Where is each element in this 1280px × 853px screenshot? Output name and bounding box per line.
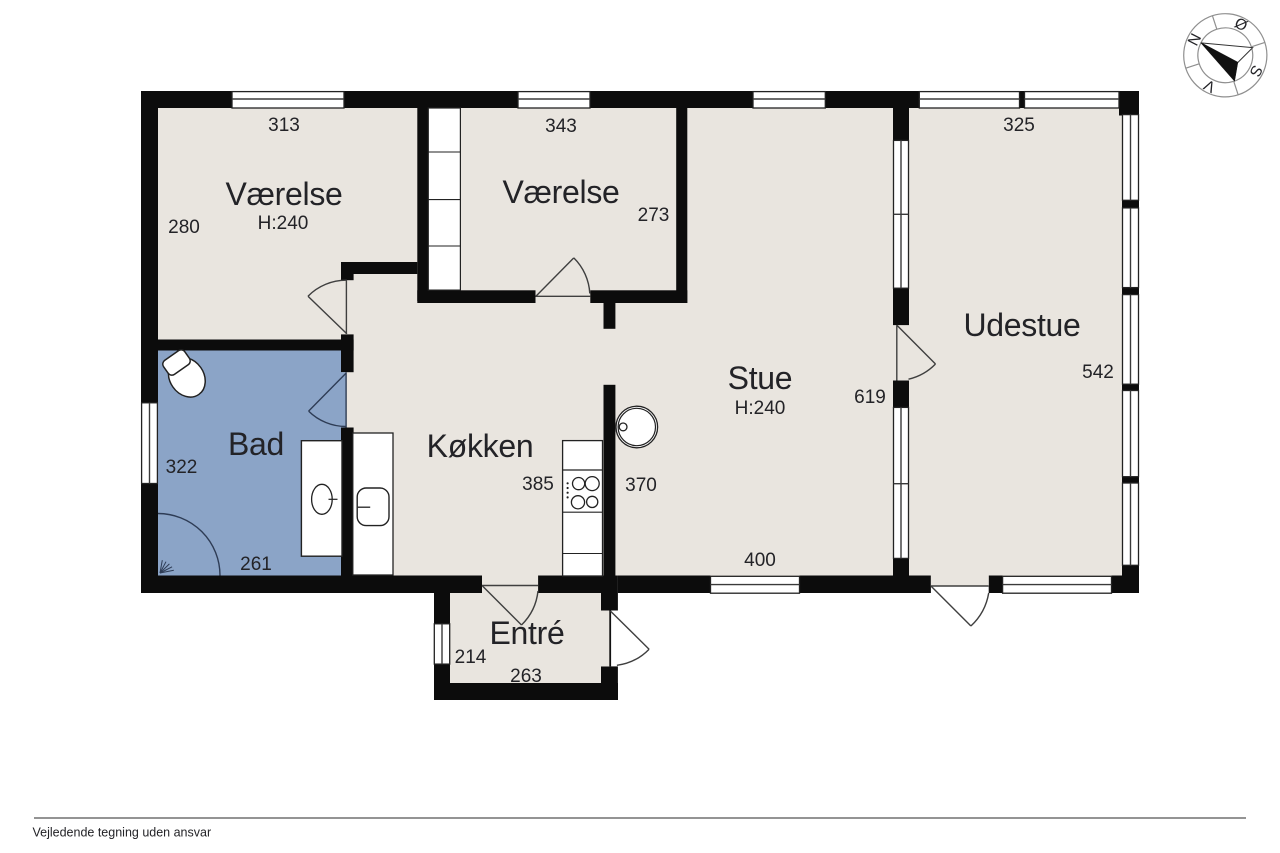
svg-text:H:240: H:240 [258, 213, 309, 234]
svg-text:214: 214 [455, 647, 487, 668]
svg-text:313: 313 [268, 115, 300, 136]
svg-text:Stue: Stue [728, 360, 793, 396]
svg-text:Vejledende tegning uden ansvar: Vejledende tegning uden ansvar [33, 826, 212, 840]
svg-text:385: 385 [522, 474, 554, 495]
svg-text:Værelse: Værelse [225, 176, 342, 212]
svg-text:325: 325 [1003, 115, 1035, 136]
svg-text:619: 619 [854, 387, 886, 408]
svg-text:343: 343 [545, 116, 577, 137]
svg-text:Udestue: Udestue [963, 307, 1080, 343]
svg-text:Bad: Bad [228, 426, 284, 462]
svg-text:261: 261 [240, 554, 272, 575]
svg-text:Køkken: Køkken [427, 428, 534, 464]
svg-text:370: 370 [625, 475, 657, 496]
svg-text:H:240: H:240 [735, 398, 786, 419]
svg-text:542: 542 [1082, 362, 1114, 383]
svg-text:400: 400 [744, 550, 776, 571]
svg-text:322: 322 [166, 457, 198, 478]
svg-text:263: 263 [510, 666, 542, 687]
svg-text:Entré: Entré [490, 615, 565, 651]
svg-text:280: 280 [168, 217, 200, 238]
svg-text:273: 273 [638, 205, 670, 226]
svg-text:Værelse: Værelse [502, 174, 619, 210]
